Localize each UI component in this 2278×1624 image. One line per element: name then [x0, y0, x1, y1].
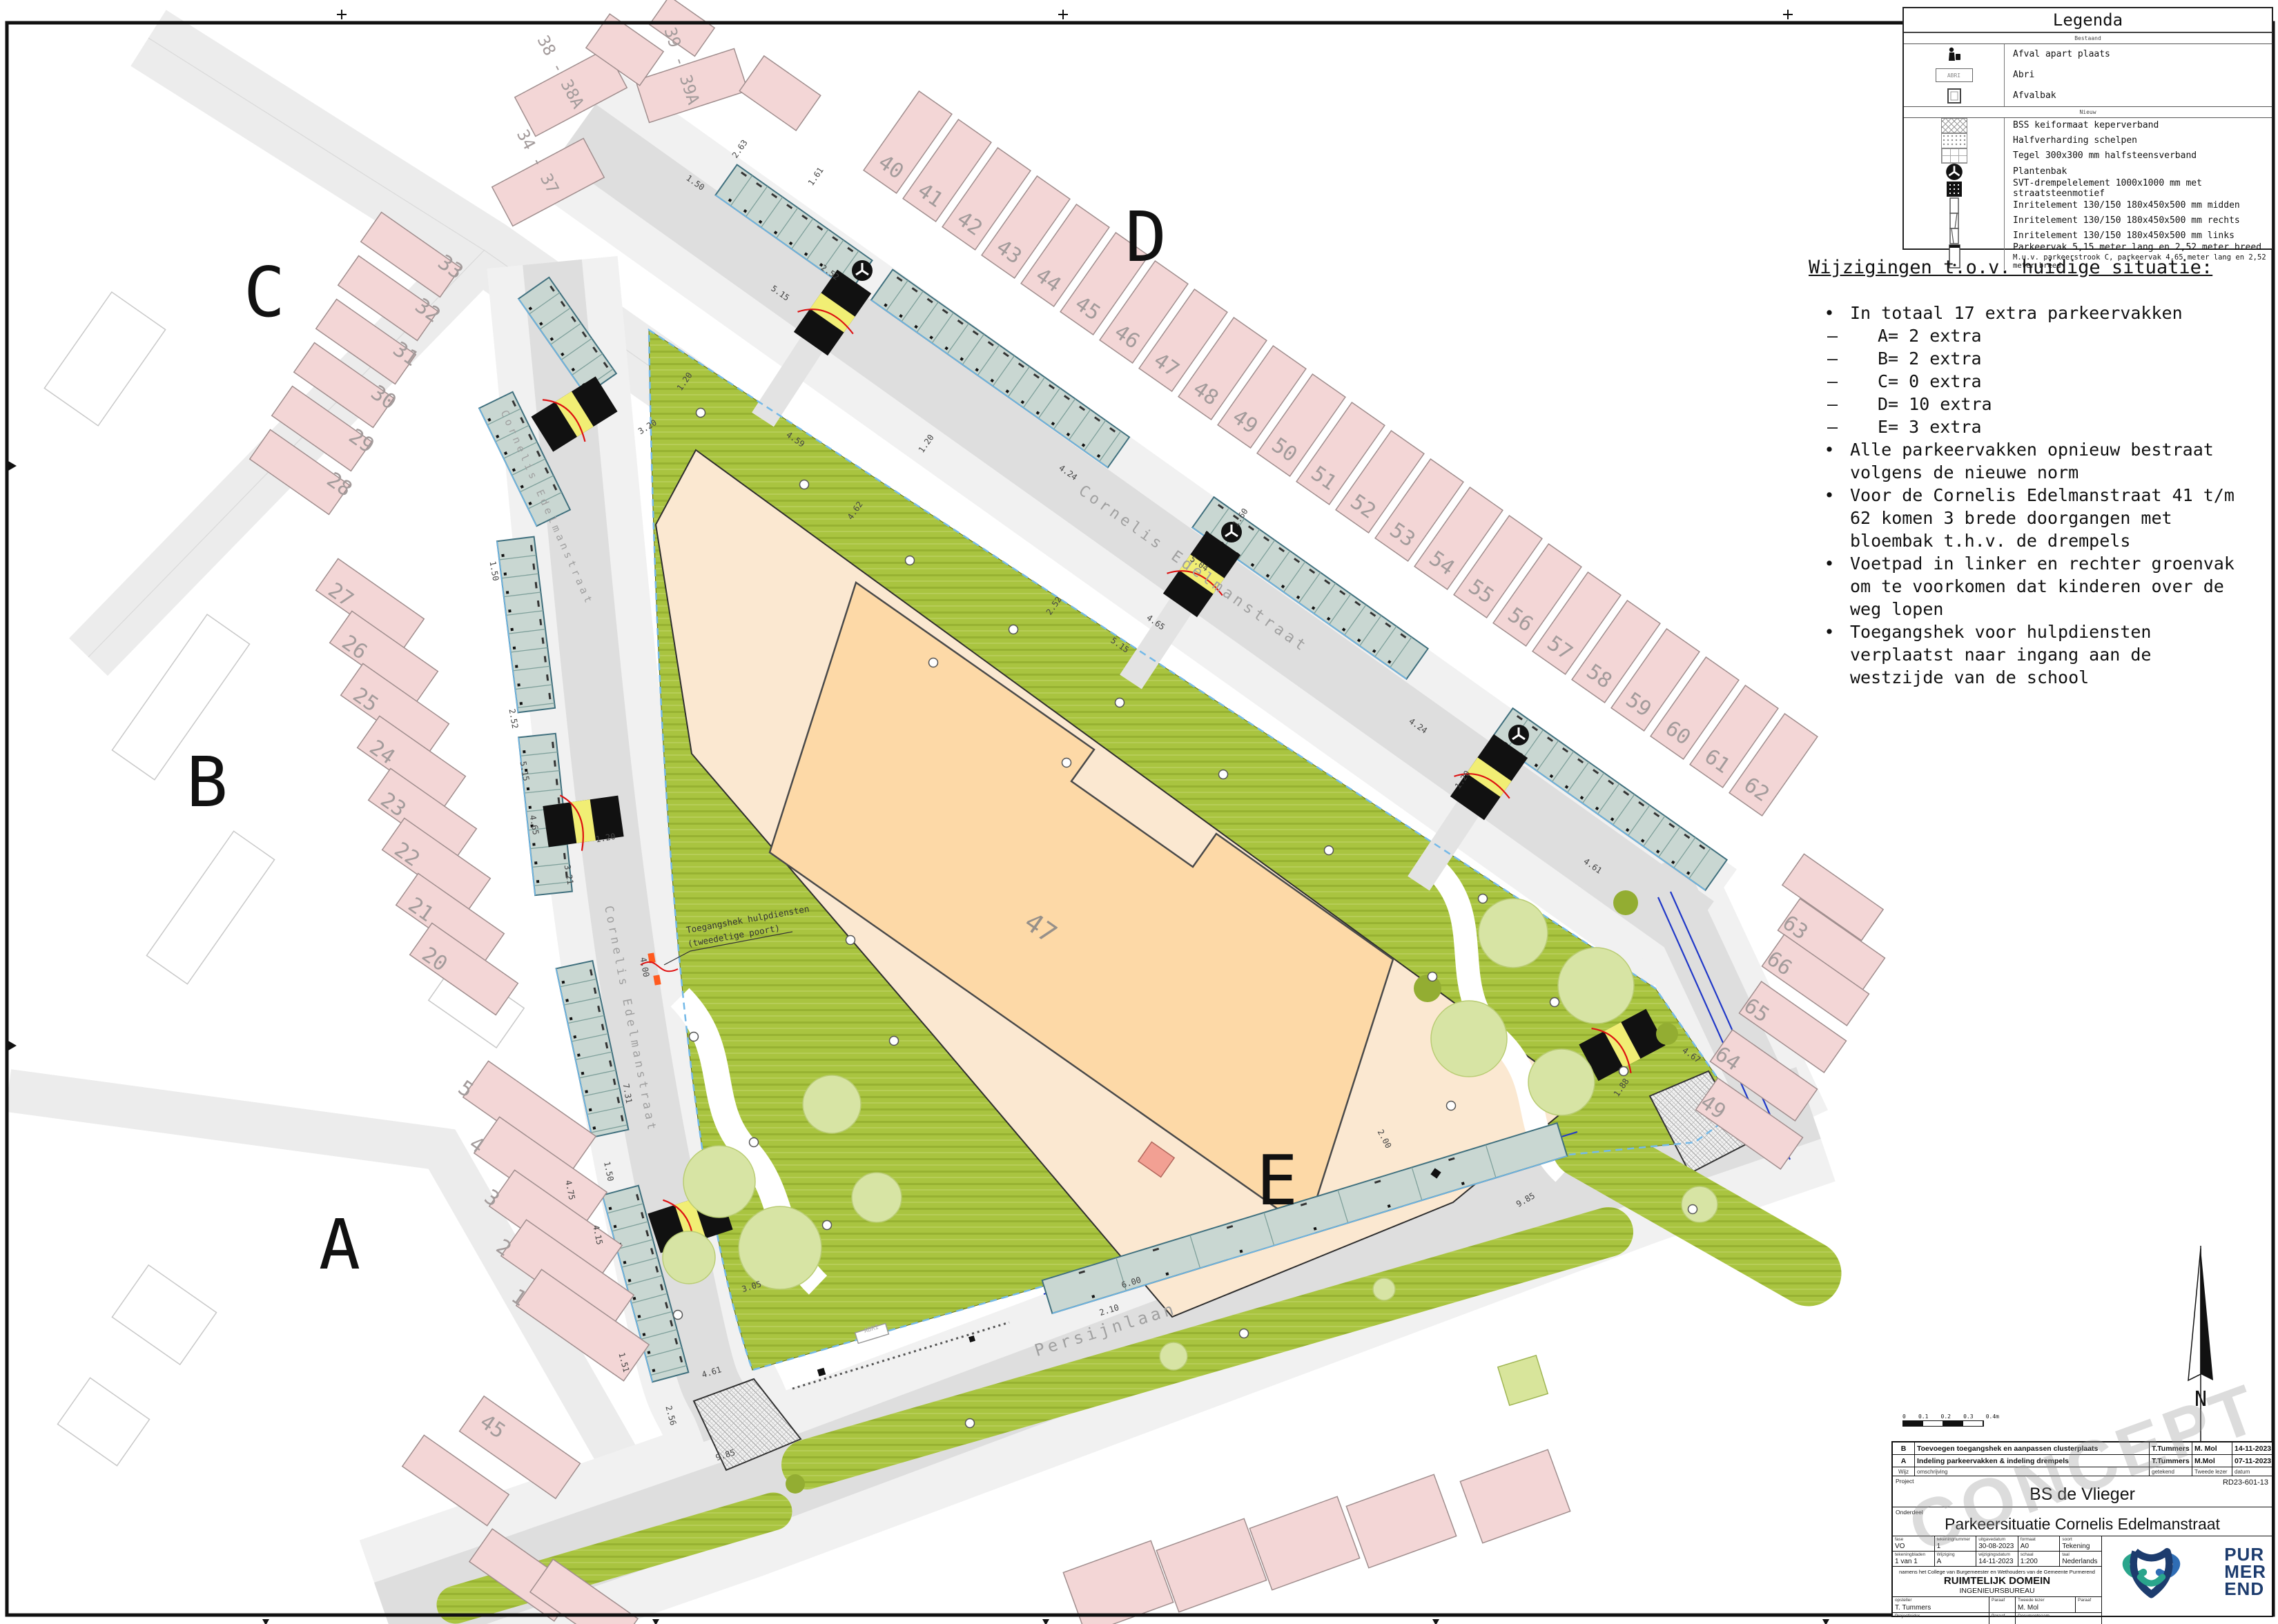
- paraaf-label-2: Paraaf: [2078, 1598, 2091, 1603]
- field-soort: soortTekening: [2060, 1536, 2101, 1551]
- section-letter: A: [319, 1204, 360, 1285]
- scale-tick-label: 0.2: [1941, 1413, 1951, 1420]
- lamp-post: [929, 658, 938, 667]
- legend-item-label: Afvalbak: [2005, 91, 2056, 101]
- revision-table: BToevoegen toegangshek en aanpassen clus…: [1893, 1442, 2272, 1476]
- lamp-post: [1688, 1205, 1697, 1214]
- legend-item-label: BSS keiformaat keperverband: [2005, 121, 2159, 131]
- change-item: •Alle parkeervakken opnieuw bestraat vol…: [1809, 438, 2275, 484]
- tweede-lezer-value: M. Mol: [2018, 1604, 2038, 1612]
- lamp-post: [800, 480, 809, 489]
- lamp-post: [1219, 770, 1228, 779]
- part-name: Parkeersituatie Cornelis Edelmanstraat: [1893, 1515, 2272, 1534]
- section-letter: D: [1125, 197, 1167, 277]
- change-item: •Voor de Cornelis Edelmanstraat 41 t/m 6…: [1809, 484, 2275, 552]
- lamp-post: [1062, 759, 1071, 767]
- field-wijzigingsdatum: wijzigingsdatum14-11-2023: [1976, 1552, 2018, 1566]
- changes-list: •In totaal 17 extra parkeervakken–A= 2 e…: [1809, 302, 2275, 689]
- section-letter: E: [1256, 1140, 1298, 1221]
- lamp-post: [1619, 1067, 1628, 1076]
- lamp-post: [1116, 698, 1125, 707]
- changes-note: Wijzigingen t.o.v. huidige situatie: •In…: [1809, 257, 2275, 689]
- lamp-post: [1479, 894, 1488, 903]
- shrub: [1656, 1023, 1678, 1045]
- legend-item: Halfverharding schelpen: [1904, 133, 2272, 148]
- lamp-post: [823, 1221, 832, 1230]
- legend-item-label: Inritelement 130/150 180x450x500 mm midd…: [2005, 201, 2240, 211]
- change-item: –A= 2 extra: [1809, 324, 2275, 347]
- context-building: [44, 292, 165, 426]
- legend-item-label: Abri: [2005, 70, 2034, 81]
- north-arrow: N: [2188, 1246, 2213, 1446]
- shrub: [1613, 890, 1638, 915]
- field-schaal: schaal1:200: [2018, 1552, 2061, 1566]
- tree-canopy: [1479, 899, 1548, 968]
- change-item: –C= 0 extra: [1809, 370, 2275, 393]
- bureau: INGENIEURSBUREAU: [1893, 1587, 2101, 1597]
- lamp-post: [846, 936, 855, 945]
- revision-row: AIndeling parkeervakken & indeling dremp…: [1893, 1455, 2272, 1467]
- section-letter: B: [186, 742, 228, 823]
- projectleider-label: Projectleider: [1895, 1614, 1920, 1618]
- lamp-post: [906, 556, 915, 565]
- field-fase: faseVO: [1893, 1536, 1935, 1551]
- field-tekeningbladen: tekeningbladen1 van 1: [1893, 1552, 1935, 1566]
- house-block: [1156, 1518, 1266, 1612]
- scale-tick-label: 0.4m: [1986, 1413, 1999, 1420]
- tree-canopy: [1160, 1342, 1187, 1370]
- scale-tick-label: 0.3: [1963, 1413, 1973, 1420]
- paraaf-label: Paraaf: [1992, 1598, 2005, 1603]
- shrub: [1414, 975, 1441, 1002]
- change-item: –D= 10 extra: [1809, 393, 2275, 415]
- lamp-post: [1447, 1102, 1456, 1111]
- field-tekeningnummer: tekeningnummer1: [1935, 1536, 1977, 1551]
- bss-icon: [1904, 118, 2005, 133]
- authority-line: namens het College van Burgemeester en W…: [1893, 1567, 2101, 1575]
- tree-canopy: [1558, 948, 1634, 1024]
- north-label: N: [2194, 1387, 2207, 1411]
- dimension-label: 1.50: [488, 560, 501, 582]
- lamp-post: [1325, 846, 1334, 855]
- purmerend-logo-icon: [2112, 1540, 2191, 1620]
- afval-apart-icon: [1904, 44, 2005, 65]
- tweede-lezer-label: Tweede lezer: [2018, 1598, 2045, 1603]
- plantenbak: [1508, 725, 1529, 745]
- project-row: Project RD23-601-13 BS de Vlieger: [1893, 1476, 2272, 1507]
- drawing-sheet: 4041424344454647484950515253545556575859…: [0, 0, 2278, 1624]
- lamp-post: [1550, 998, 1559, 1007]
- house-block: [1460, 1449, 1570, 1543]
- tree-canopy: [663, 1231, 715, 1284]
- logo-cell: PURMEREND Purmer-Zuid: [2102, 1536, 2272, 1624]
- lamp-post: [966, 1419, 975, 1428]
- tree-canopy: [1528, 1049, 1595, 1115]
- scale-bar-segments: [1902, 1420, 1984, 1427]
- project-name: BS de Vlieger: [1893, 1485, 2272, 1505]
- title-block-left: faseVOtekeningnummer1uitgavedatum30-08-2…: [1893, 1536, 2102, 1624]
- section-letter: C: [244, 252, 285, 333]
- department: RUIMTELIJK DOMEIN: [1893, 1575, 2101, 1587]
- field-taal: taalNederlands: [2060, 1552, 2101, 1566]
- legend-item-label: Inritelement 130/150 180x450x500 mm link…: [2005, 231, 2235, 242]
- legend-item: BSS keiformaat keperverband: [1904, 118, 2272, 133]
- change-item: –B= 2 extra: [1809, 347, 2275, 370]
- part-row: Onderdeel Parkeersituatie Cornelis Edelm…: [1893, 1507, 2272, 1536]
- changes-title: Wijzigingen t.o.v. huidige situatie:: [1809, 257, 2275, 278]
- lamp-post: [750, 1138, 759, 1147]
- tree-canopy: [739, 1206, 821, 1289]
- tegel-icon: [1904, 148, 2005, 164]
- legend-section-header: Bestaand: [1904, 32, 2272, 44]
- legend-item-label: Afval apart plaats: [2005, 50, 2110, 60]
- plantenbak-icon: [1904, 164, 2005, 180]
- field-wijziging: WijzigingA: [1935, 1552, 1977, 1566]
- plantenbak: [852, 260, 873, 281]
- legend-item-label: Inritelement 130/150 180x450x500 mm rech…: [2005, 216, 2240, 226]
- revision-row: BToevoegen toegangshek en aanpassen clus…: [1893, 1442, 2272, 1455]
- change-item: •Voetpad in linker en rechter groenvak o…: [1809, 552, 2275, 620]
- title-block: BToevoegen toegangshek en aanpassen clus…: [1891, 1441, 2273, 1617]
- tree-canopy: [683, 1146, 755, 1217]
- project-label: Project: [1896, 1478, 1914, 1485]
- legend-item: Afval apart plaats: [1904, 44, 2272, 65]
- legend-item-label: Plantenbak: [2005, 167, 2067, 177]
- house-block: [1063, 1540, 1173, 1624]
- context-building: [112, 1265, 216, 1364]
- change-item: –E= 3 extra: [1809, 415, 2275, 438]
- opsteller-value: T. Tummers: [1895, 1604, 1931, 1612]
- tree-canopy: [1431, 1001, 1507, 1077]
- legend-item: ABRIAbri: [1904, 65, 2272, 86]
- legend-panel: Legenda BestaandAfval apart plaatsABRIAb…: [1902, 7, 2273, 250]
- legend-section-header: Nieuw: [1904, 106, 2272, 118]
- lamp-post: [1240, 1329, 1249, 1338]
- tree-canopy: [1682, 1186, 1717, 1222]
- paraaf-label-3: Paraaf: [1992, 1614, 2005, 1618]
- dimension-label: 2.63: [730, 138, 750, 160]
- field-formaat: formaatA0: [2018, 1536, 2061, 1551]
- legend-item-label: Tegel 300x300 mm halfsteensverband: [2005, 151, 2197, 162]
- legend-item-label: SVT-drempelelement 1000x1000 mm met stra…: [2005, 179, 2272, 199]
- purmerend-logo-text: PURMEREND: [2224, 1546, 2266, 1598]
- scale-tick-label: 0: [1902, 1413, 1906, 1420]
- change-item: •In totaal 17 extra parkeervakken: [1809, 302, 2275, 324]
- scale-tick-label: 0.1: [1918, 1413, 1928, 1420]
- scale-bar: 00.10.20.30.4m: [1902, 1413, 1999, 1427]
- afvalbak-icon: [1904, 86, 2005, 106]
- change-item: •Toegangshek voor hulpdiensten verplaats…: [1809, 620, 2275, 689]
- abri-icon: ABRI: [1904, 65, 2005, 86]
- documentnaam-label: Documentnaam: [2018, 1614, 2050, 1618]
- schelpen-icon: [1904, 133, 2005, 148]
- revision-header-row: WijzomschrijvinggetekendTweede lezerdatu…: [1893, 1467, 2272, 1476]
- opsteller-label: opsteller: [1895, 1598, 1912, 1603]
- house-block: [1249, 1496, 1359, 1589]
- inrit-links-icon: [1904, 228, 2005, 244]
- lamp-post: [697, 409, 705, 418]
- legend-item: Inritelement 130/150 180x450x500 mm link…: [1904, 228, 2272, 244]
- lamp-post: [1428, 972, 1437, 981]
- context-building: [146, 831, 274, 984]
- lamp-post: [690, 1033, 699, 1041]
- tree-canopy: [852, 1173, 902, 1222]
- tree-canopy: [803, 1075, 861, 1133]
- legend-title: Legenda: [1904, 8, 2272, 32]
- field-uitgavedatum: uitgavedatum30-08-2023: [1976, 1536, 2018, 1551]
- legend-item: Tegel 300x300 mm halfsteensverband: [1904, 148, 2272, 164]
- dimension-label: 1.61: [806, 166, 826, 188]
- house-block: [739, 56, 820, 130]
- legend-item: Afvalbak: [1904, 86, 2272, 106]
- scale-bar-labels: 00.10.20.30.4m: [1902, 1413, 1999, 1420]
- legend-items: BestaandAfval apart plaatsABRIAbriAfvalb…: [1904, 32, 2272, 270]
- context-building: [57, 1378, 149, 1465]
- legend-item-label: Halfverharding schelpen: [2005, 136, 2137, 146]
- house-block: [1346, 1474, 1456, 1567]
- lamp-post: [890, 1037, 899, 1046]
- lamp-post: [674, 1311, 683, 1320]
- shrub: [786, 1474, 805, 1494]
- tree-canopy: [1373, 1278, 1395, 1300]
- lamp-post: [1009, 625, 1018, 634]
